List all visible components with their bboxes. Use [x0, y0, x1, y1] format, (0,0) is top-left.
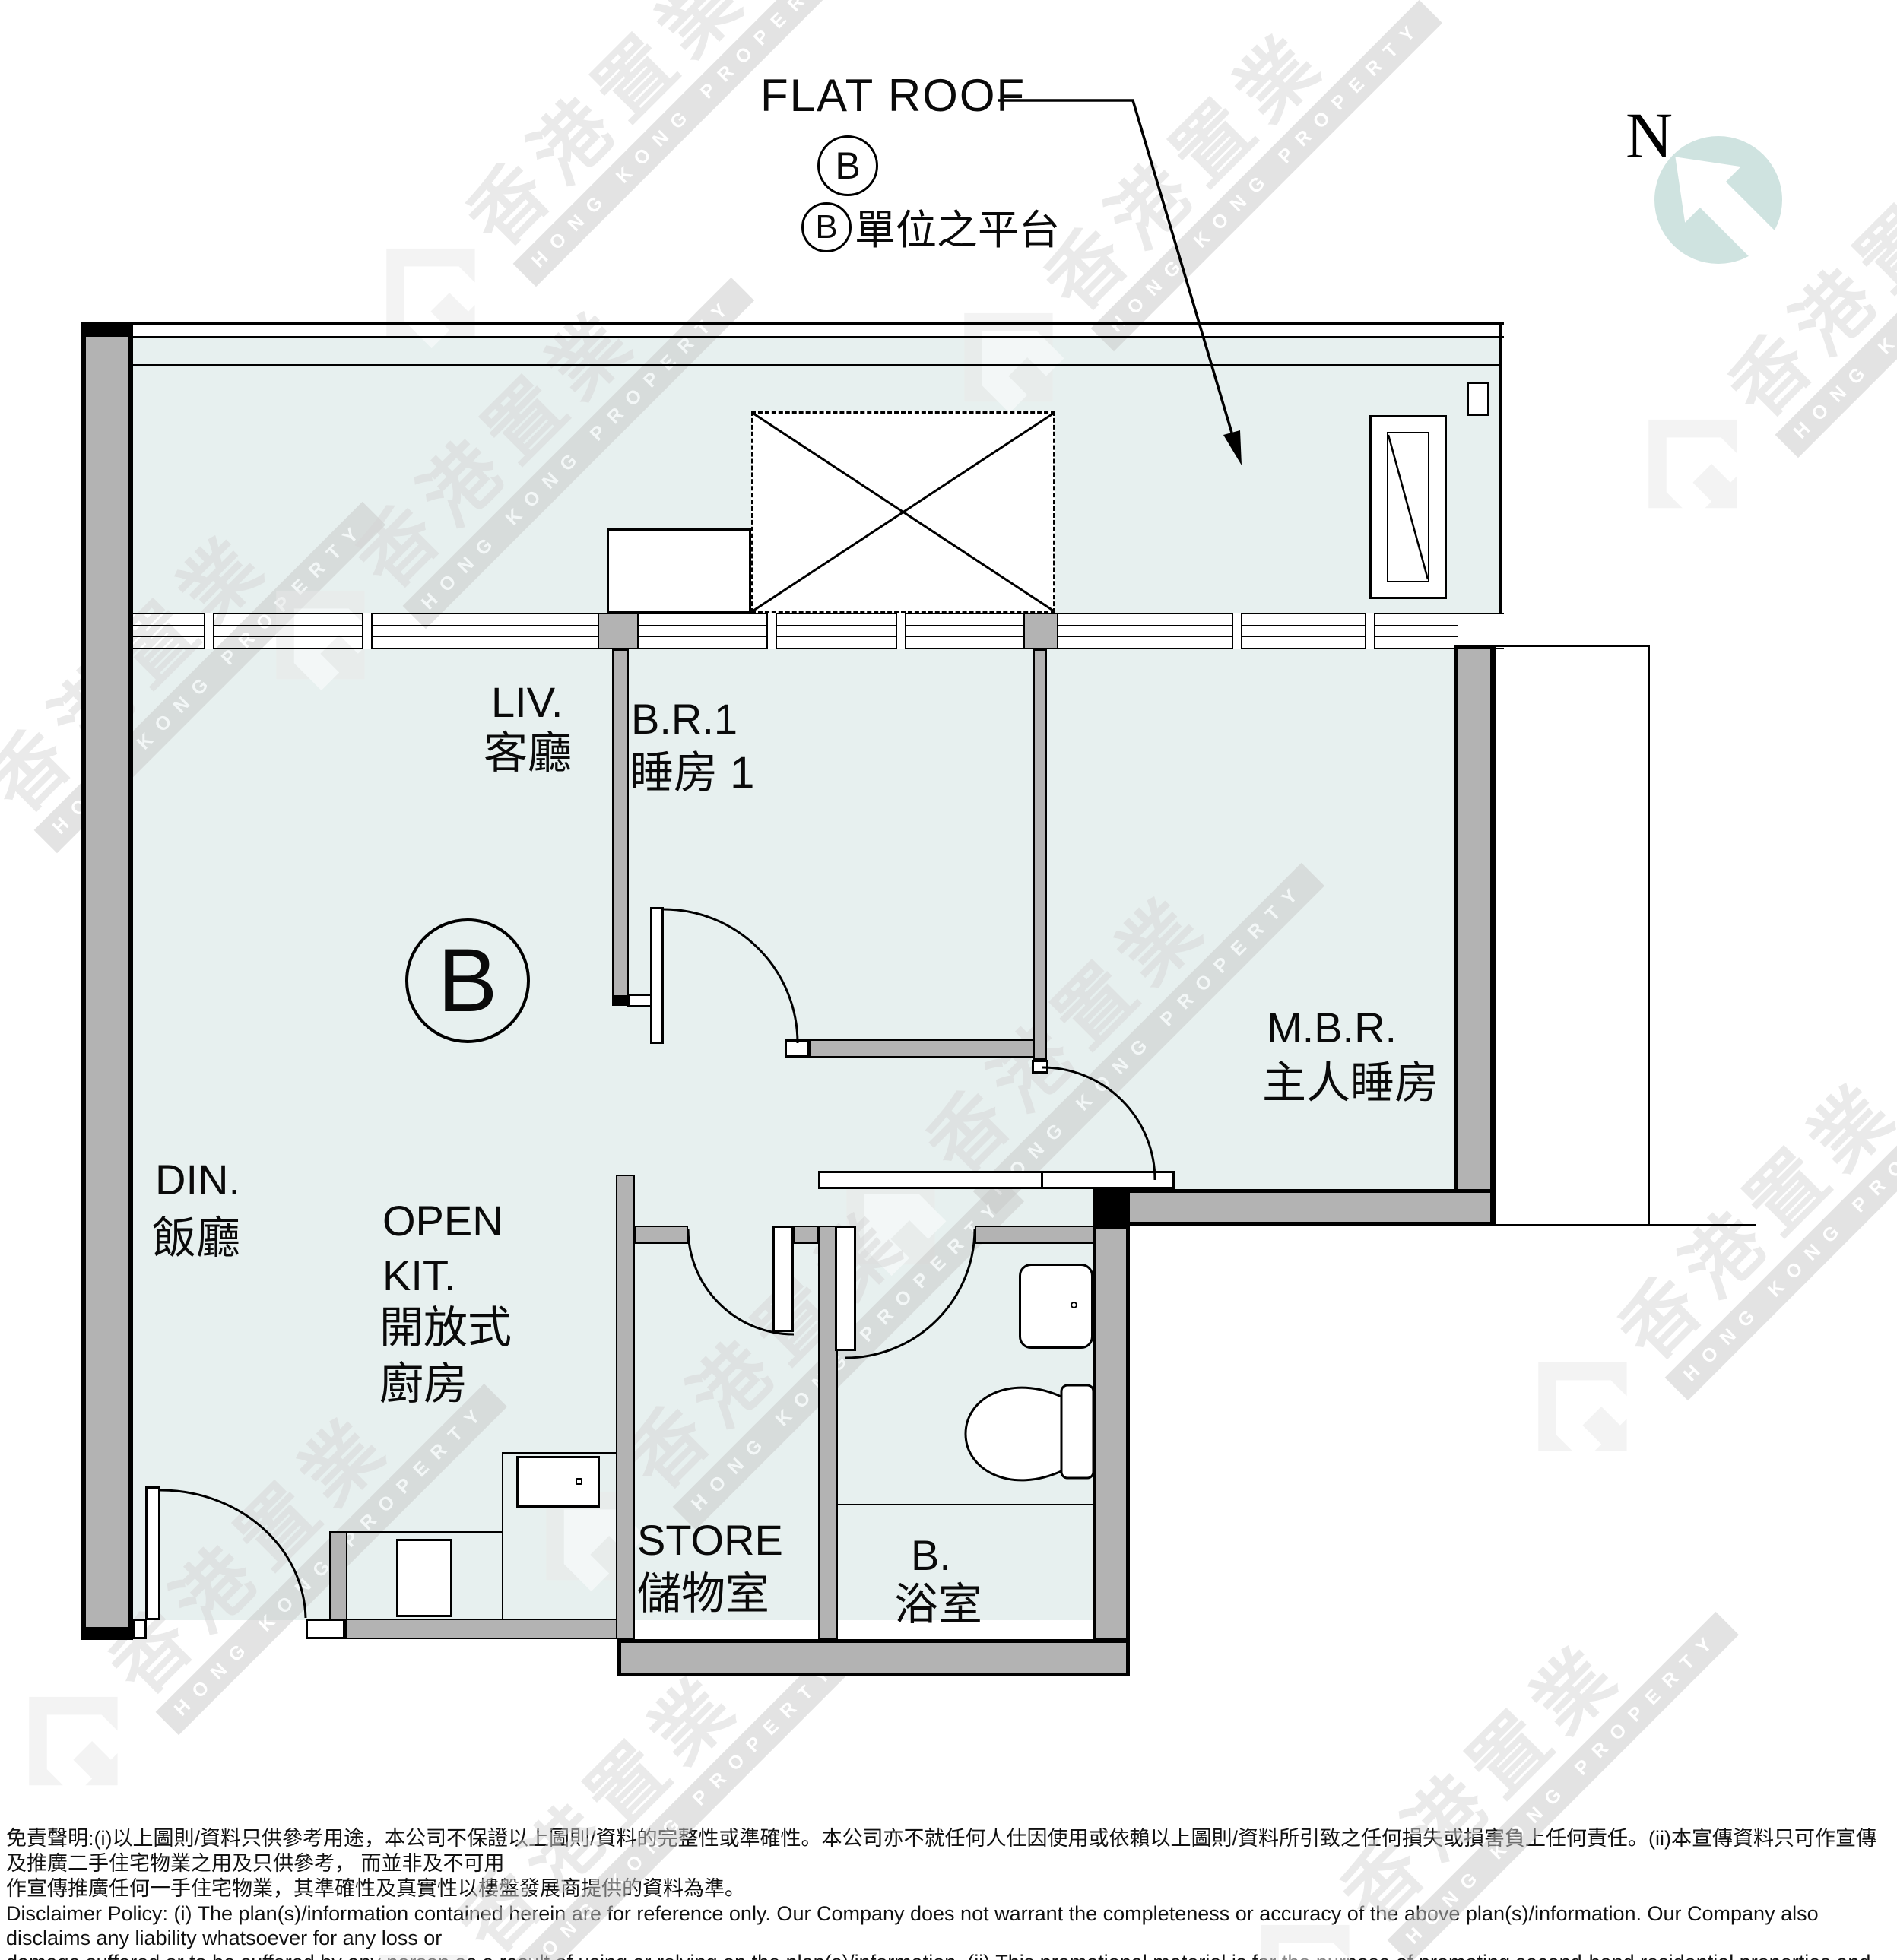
basin-drain-dot — [1071, 1302, 1077, 1308]
watermark-cn-text: 香港置業 — [1033, 0, 1415, 324]
room-label-kitchen-en1: OPEN — [382, 1200, 503, 1242]
disclaimer-en-line1: Disclaimer Policy: (i) The plan(s)/infor… — [6, 1901, 1893, 1950]
kitchen-counter-edge — [502, 1452, 619, 1454]
platform-unit-letter: B — [815, 208, 837, 246]
disclaimer-en-line2: damage suffered or to be suffered by any… — [6, 1950, 1893, 1960]
sink-drain-dot — [576, 1478, 582, 1485]
left-exterior-wall — [81, 337, 133, 1629]
room-label-master-en: M.B.R. — [1267, 1007, 1397, 1049]
north-label: N — [1626, 97, 1673, 173]
planter-box — [607, 528, 751, 614]
hatched-void-box — [751, 411, 1055, 613]
window-band-bottom-line — [81, 648, 1504, 649]
watermark-cn-text: 香港置業 — [455, 0, 837, 259]
south-thick-wall — [617, 1639, 1130, 1676]
room-label-dining-zh: 飯廳 — [152, 1216, 240, 1261]
flat-roof-right-edge — [1499, 322, 1502, 613]
room-label-kitchen-en2: KIT. — [382, 1254, 455, 1297]
unit-floor-upper — [133, 649, 1476, 1192]
kitchen-wall-stub — [329, 1531, 347, 1620]
room-label-living-en: LIV. — [491, 681, 563, 724]
br1-door-leaf — [650, 907, 664, 1044]
kitchen-counter-edge — [502, 1452, 503, 1620]
kitchen-counter-edge — [347, 1531, 503, 1533]
hkp-house-logo-icon — [0, 1647, 170, 1838]
disclaimer-block: 免責聲明:(i)以上圖則/資料只供參考用途，本公司不保證以上圖則/資料的完整性或… — [6, 1826, 1893, 1960]
disclaimer-zh-line2: 作宣傳推廣任何一手住宅物業，其準確性及真實性以樓盤發展商提供的資料為準。 — [6, 1876, 1893, 1901]
flat-roof-label: FLAT ROOF — [760, 73, 1026, 119]
platform-label: 單位之平台 — [855, 210, 1060, 251]
parapet-base-line — [81, 364, 1502, 366]
br1-wall-end-cap — [612, 997, 629, 1006]
hkp-house-logo-icon — [1599, 369, 1790, 560]
watermark-cn-text: 香港置業 — [1717, 48, 1897, 430]
bath-door-leaf — [835, 1226, 856, 1351]
wall-pier — [1023, 613, 1058, 649]
adjacent-unit-outline — [1494, 645, 1650, 1226]
basin-icon — [1019, 1264, 1093, 1349]
window-mullion — [1365, 613, 1375, 649]
room-label-master-zh: 主人睡房 — [1262, 1061, 1439, 1105]
parapet-outer-line — [81, 322, 1504, 325]
flat-roof-unit-circle: B — [817, 135, 878, 196]
shower-curb-line — [838, 1504, 1094, 1505]
south-west-wall — [345, 1619, 617, 1639]
window-mullion — [204, 613, 214, 649]
left-wall-cap — [81, 322, 133, 337]
store-west-wall — [616, 1175, 635, 1639]
window-mullion — [1232, 613, 1242, 649]
corridor-north-wall-and-mbr-door-leaf — [818, 1171, 1175, 1189]
room-label-kitchen-zh2: 廚房 — [379, 1362, 468, 1407]
watermark-cn-text: 香港置業 — [1607, 991, 1897, 1373]
room-label-bedroom1-en: B.R.1 — [631, 698, 738, 741]
platform-unit-circle: B — [801, 202, 852, 252]
watermark-en-band: HONG KONG PROPERTY — [1091, 0, 1443, 351]
room-label-store-en: STORE — [637, 1519, 783, 1562]
br1-west-wall — [612, 649, 629, 997]
window-mullion — [896, 613, 906, 649]
wall-corner-block — [1093, 1189, 1130, 1229]
room-label-bath-zh: 浴室 — [894, 1583, 982, 1627]
parapet-inner-line — [81, 336, 1504, 338]
entrance-door-jamb — [306, 1619, 345, 1639]
window-mullion — [362, 613, 373, 649]
wall-pier — [598, 613, 639, 649]
br1-door-jamb — [785, 1039, 809, 1058]
mbr-south-thick-wall — [1093, 1189, 1494, 1226]
window-band — [81, 613, 1504, 649]
store-north-wall — [794, 1226, 818, 1244]
roof-drain-box — [1467, 382, 1489, 416]
right-exterior-wall — [1454, 645, 1494, 1226]
watermark-en-band: HONG KONG PROPERTY — [1775, 106, 1897, 458]
mbr-door-jamb — [1032, 1060, 1048, 1074]
entrance-door-jamb — [132, 1619, 147, 1639]
window-mullion — [766, 613, 777, 649]
unit-floor-lower — [133, 1192, 1096, 1620]
room-label-kitchen-zh1: 開放式 — [379, 1306, 512, 1350]
window-band-top-line — [81, 613, 1504, 614]
room-label-bedroom1-zh: 睡房 1 — [630, 751, 754, 795]
br1-south-wall — [809, 1039, 1035, 1058]
entrance-door-leaf — [145, 1486, 160, 1620]
br1-east-wall — [1033, 649, 1047, 1060]
left-wall-cap — [81, 1627, 133, 1640]
store-door-leaf — [772, 1226, 794, 1332]
store-north-wall — [635, 1226, 688, 1244]
mbr-door-hinge-tick — [1041, 1171, 1043, 1189]
room-label-bath-en: B. — [911, 1534, 951, 1577]
room-label-store-zh: 儲物室 — [637, 1572, 769, 1616]
floor-plan-canvas: 香港置業 HONG KONG PROPERTY 香港置業 HONG KONG P… — [0, 0, 1897, 1960]
north-compass-icon — [1654, 136, 1782, 264]
disclaimer-zh-line1: 免責聲明:(i)以上圖則/資料只供參考用途，本公司不保證以上圖則/資料的完整性或… — [6, 1826, 1893, 1876]
unit-circle: B — [405, 918, 530, 1043]
room-label-dining-en: DIN. — [155, 1159, 240, 1201]
adjacent-boundary-line — [1650, 1224, 1756, 1226]
appliance-box — [396, 1539, 452, 1617]
east-thick-wall — [1093, 1226, 1130, 1642]
flat-roof-unit-letter: B — [835, 144, 860, 188]
watermark: 香港置業 HONG KONG PROPERTY — [337, 0, 865, 389]
stair-feature-inner — [1387, 432, 1429, 582]
hkp-house-logo-icon — [0, 765, 49, 956]
bath-north-wall — [975, 1226, 1094, 1244]
hkp-house-logo-icon — [1489, 1312, 1680, 1503]
room-label-living-zh: 客廳 — [484, 731, 572, 775]
sink-icon — [516, 1456, 600, 1508]
unit-circle-letter: B — [438, 929, 498, 1032]
